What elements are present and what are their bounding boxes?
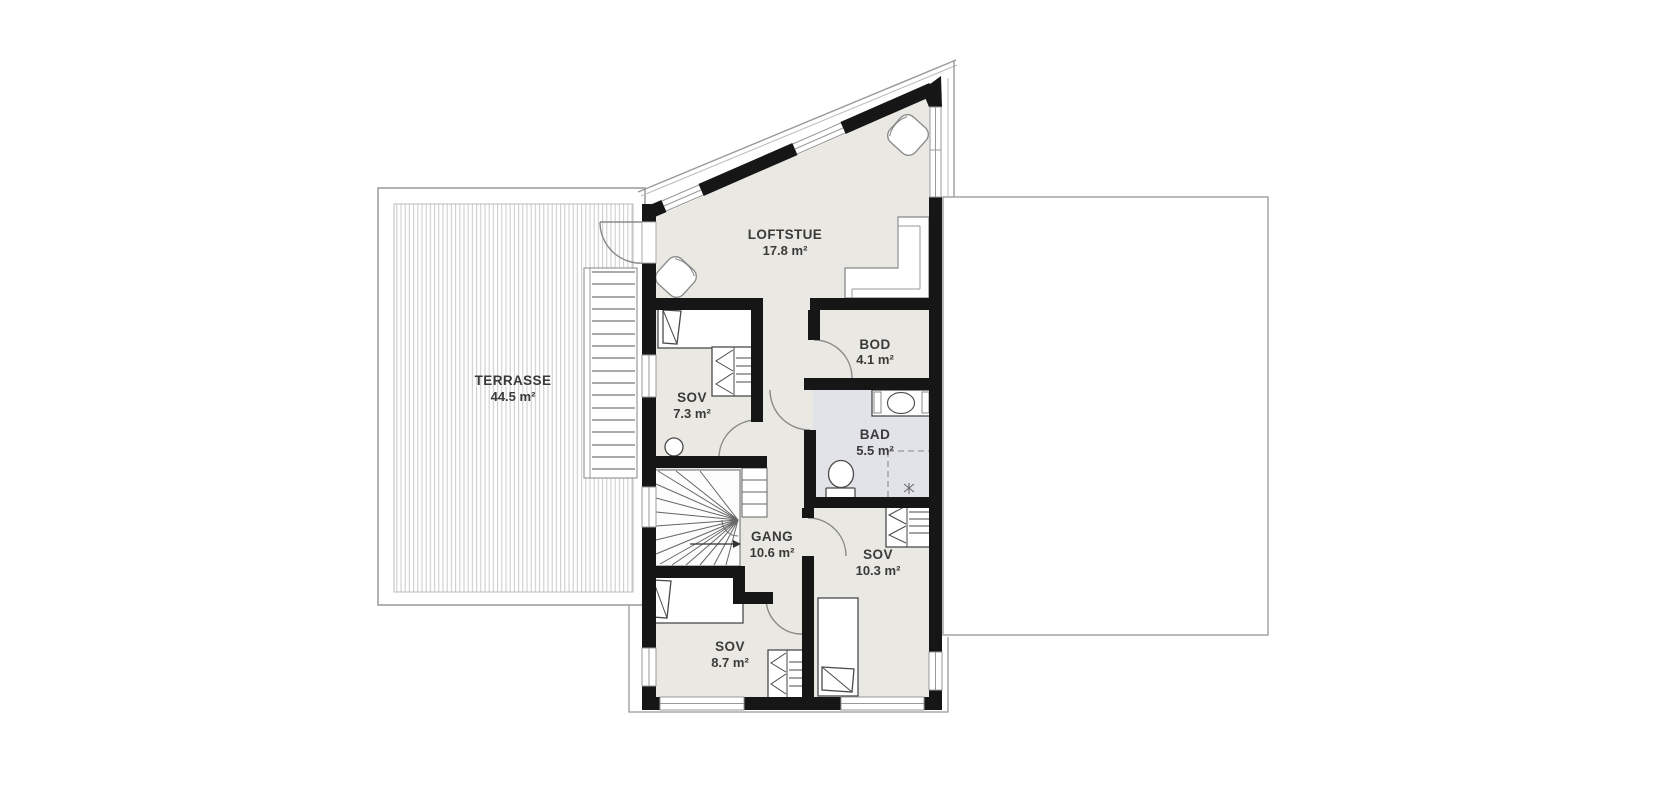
window — [660, 697, 744, 710]
toilet — [826, 461, 855, 500]
svg-text:BAD: BAD — [860, 427, 890, 442]
svg-text:4.1 m²: 4.1 m² — [856, 352, 894, 367]
svg-text:SOV: SOV — [677, 390, 707, 405]
bed — [658, 306, 752, 348]
exterior-ladder — [584, 268, 637, 478]
svg-text:8.7 m²: 8.7 m² — [711, 655, 749, 670]
bed — [818, 598, 858, 696]
lower-roof — [943, 197, 1268, 635]
svg-text:TERRASSE: TERRASSE — [475, 373, 552, 388]
svg-text:44.5 m²: 44.5 m² — [491, 389, 536, 404]
sink-vanity — [872, 390, 931, 416]
wardrobe — [768, 650, 806, 698]
svg-text:LOFTSTUE: LOFTSTUE — [748, 227, 822, 242]
floorplan-drawing: TERRASSE 44.5 m² LOFTSTUE 17.8 m² SOV 7.… — [0, 0, 1670, 800]
room-label-bod: BOD 4.1 m² — [856, 337, 894, 367]
stool — [665, 438, 683, 456]
bed — [648, 575, 743, 623]
floorplan-page: TERRASSE 44.5 m² LOFTSTUE 17.8 m² SOV 7.… — [0, 0, 1670, 800]
wardrobe — [712, 347, 755, 396]
svg-text:GANG: GANG — [751, 529, 793, 544]
stair-winder-box — [655, 470, 740, 566]
room-label-gang: GANG 10.6 m² — [750, 529, 795, 560]
wardrobe — [886, 503, 932, 547]
window — [841, 697, 924, 710]
window — [642, 648, 656, 686]
window — [642, 355, 656, 397]
room-label-bad: BAD 5.5 m² — [856, 427, 894, 458]
svg-text:7.3 m²: 7.3 m² — [673, 406, 711, 421]
room-label-sov-top: SOV 7.3 m² — [673, 390, 711, 421]
svg-text:SOV: SOV — [863, 547, 893, 562]
svg-text:10.3 m²: 10.3 m² — [856, 563, 901, 578]
window — [929, 652, 942, 690]
terrace-door-opening — [642, 222, 656, 263]
room-label-sov-bottom: SOV 8.7 m² — [711, 639, 749, 670]
svg-text:SOV: SOV — [715, 639, 745, 654]
window — [930, 107, 941, 197]
svg-text:17.8 m²: 17.8 m² — [763, 243, 808, 258]
svg-text:5.5 m²: 5.5 m² — [856, 443, 894, 458]
svg-text:10.6 m²: 10.6 m² — [750, 545, 795, 560]
svg-text:BOD: BOD — [859, 337, 890, 352]
window — [642, 487, 656, 527]
